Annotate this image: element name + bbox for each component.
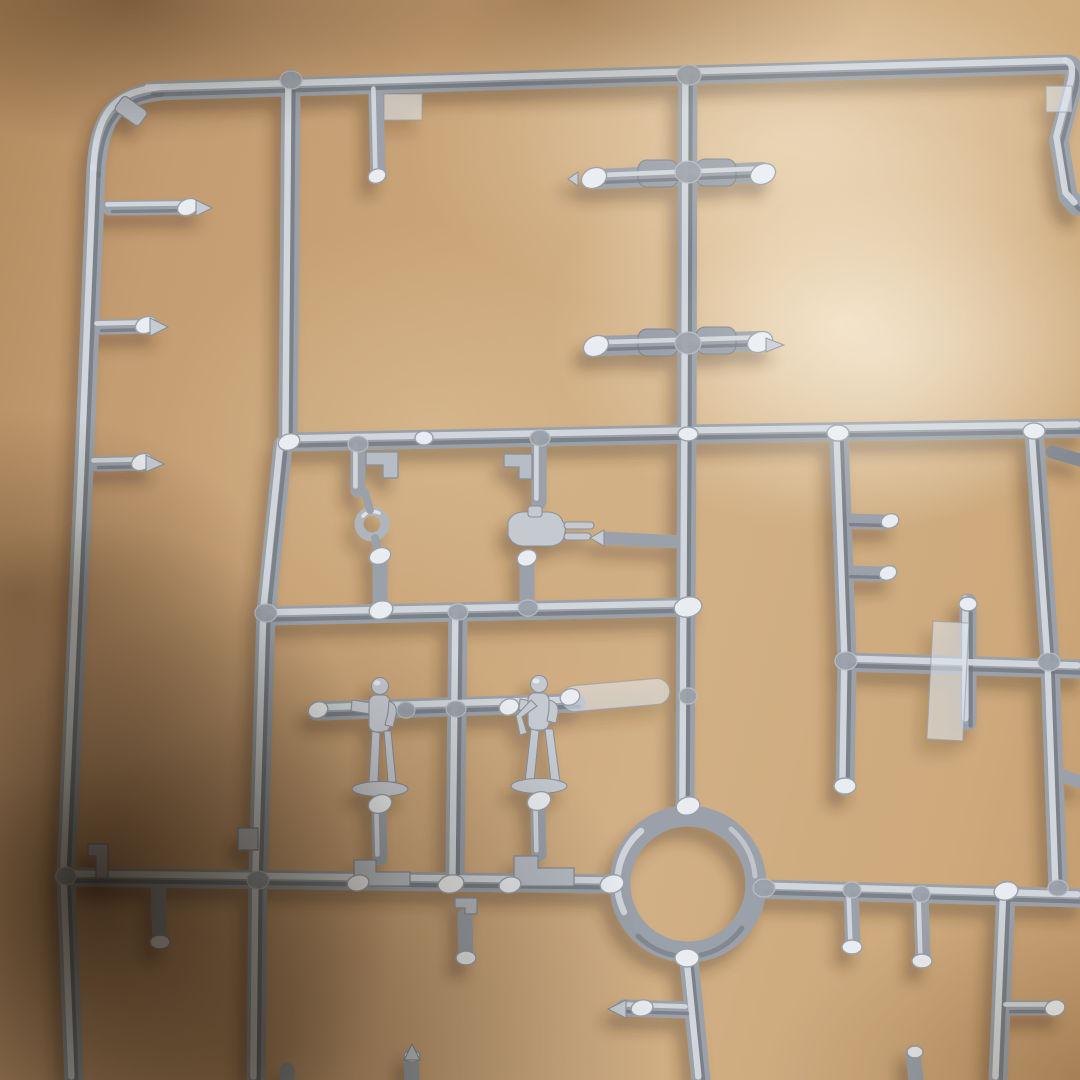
peg-stubs	[96, 92, 1080, 1080]
machine-gun-part	[508, 506, 604, 546]
photo-stage: Close-up photo of a silver-grey injectio…	[0, 0, 1080, 1080]
sprue-photo	[0, 0, 1080, 1080]
crew-figure-right	[511, 676, 567, 794]
junction-knots	[56, 65, 1068, 902]
sprue-frame	[56, 60, 1080, 1080]
clear-tab-top-right	[1046, 86, 1072, 112]
clear-cross-part	[927, 621, 969, 741]
clear-tab-top	[384, 94, 422, 120]
flat-tabs	[88, 86, 1072, 914]
crew-figure-left	[351, 678, 408, 797]
eyelet-part	[359, 492, 385, 554]
